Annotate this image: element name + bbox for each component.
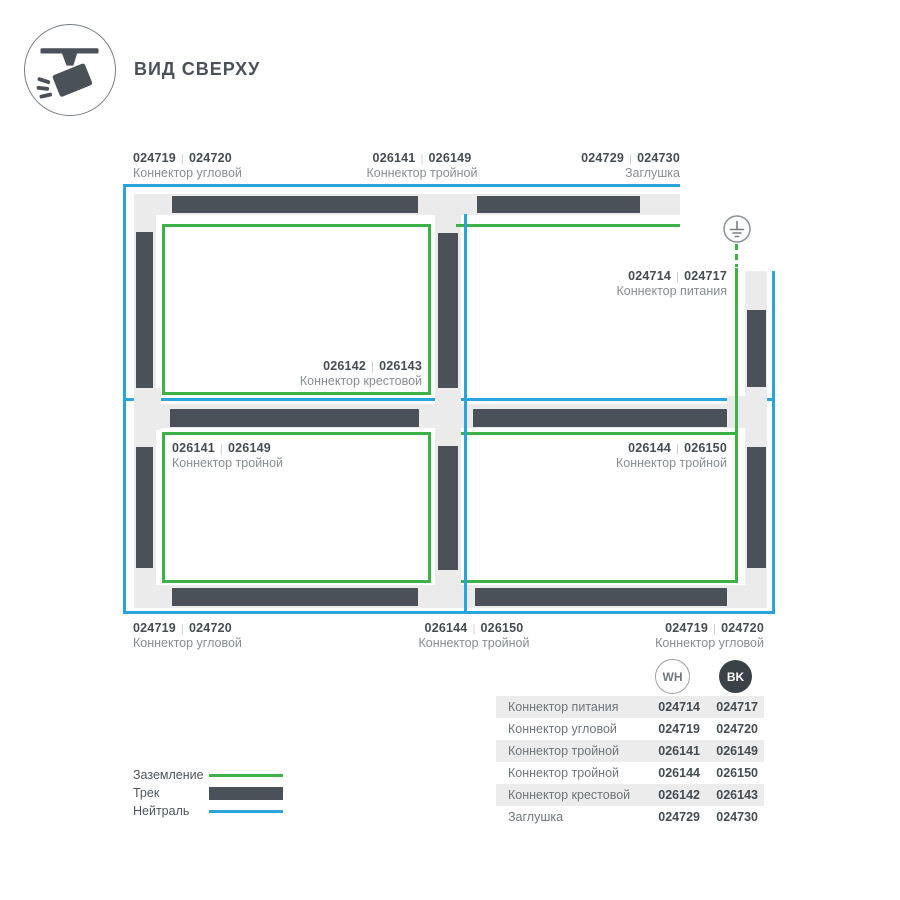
part-name: Коннектор тройной: [374, 637, 574, 650]
part-name: Коннектор угловой: [564, 637, 764, 650]
legend-item-neutral: Нейтраль: [133, 802, 283, 820]
code-separator: |: [415, 153, 428, 165]
code-wh: 024719: [665, 621, 708, 635]
track-segment: [438, 233, 458, 388]
code-bk: 026150: [481, 621, 524, 635]
track-segment: [477, 196, 640, 213]
part-label-bottom-right: 024719|024720 Коннектор угловой: [564, 621, 764, 650]
code-separator: |: [708, 623, 721, 635]
code-separator: |: [467, 623, 480, 635]
part-label-mid-left: 026141|026149 Коннектор тройной: [172, 441, 283, 470]
spotlight-glyph: [25, 25, 114, 114]
code-wh: 026141: [373, 151, 416, 165]
code-wh: 024729: [581, 151, 624, 165]
ground-line-bottom-right-top: [461, 432, 738, 435]
row-name: Коннектор угловой: [496, 722, 636, 736]
neutral-line-bottom: [123, 611, 775, 614]
track-segment: [136, 447, 153, 568]
row-code-wh: 026144: [636, 766, 700, 780]
code-wh: 026141: [172, 441, 215, 455]
code-bk: 024720: [189, 621, 232, 635]
track-segment: [172, 588, 418, 606]
code-wh: 024714: [628, 269, 671, 283]
code-separator: |: [366, 361, 379, 373]
code-wh: 026144: [425, 621, 468, 635]
row-code-wh: 026141: [636, 744, 700, 758]
track-segment: [136, 232, 153, 388]
legend-label: Нейтраль: [133, 804, 209, 818]
row-code-wh: 024719: [636, 722, 700, 736]
part-label-bottom-left: 024719|024720 Коннектор угловой: [133, 621, 242, 650]
code-bk: 024720: [189, 151, 232, 165]
part-label-top-left: 024719|024720 Коннектор угловой: [133, 151, 242, 180]
neutral-line-left: [123, 184, 126, 614]
code-separator: |: [215, 443, 228, 455]
code-bk: 024717: [684, 269, 727, 283]
track-segment: [438, 446, 458, 570]
code-bk: 026150: [684, 441, 727, 455]
code-wh: 026142: [323, 359, 366, 373]
row-code-wh: 024714: [636, 700, 700, 714]
neutral-line-top: [123, 184, 680, 187]
earth-ground-icon: [723, 215, 751, 243]
track-spotlight-icon: [24, 24, 116, 116]
legend-label: Заземление: [133, 768, 209, 782]
legend-item-track: Трек: [133, 784, 283, 802]
track-segment: [747, 447, 766, 568]
track-segment: [473, 409, 727, 427]
row-code-bk: 024717: [700, 700, 758, 714]
part-label-cross: 026142|026143 Коннектор крестовой: [222, 359, 422, 388]
parts-table-header: WH BK: [496, 659, 764, 696]
row-code-bk: 024720: [700, 722, 758, 736]
code-bk: 026149: [228, 441, 271, 455]
track-junction-left: [134, 388, 161, 430]
part-name: Коннектор крестовой: [222, 375, 422, 388]
code-separator: |: [624, 153, 637, 165]
ground-feed-vertical: [735, 268, 738, 583]
legend: Заземление Трек Нейтраль: [133, 766, 283, 820]
parts-table: WH BK Коннектор питания 024714 024717 Ко…: [496, 659, 764, 828]
part-name: Коннектор угловой: [133, 167, 242, 180]
row-code-bk: 026150: [700, 766, 758, 780]
color-badge-bk: BK: [719, 660, 752, 693]
table-row: Коннектор угловой 024719 024720: [496, 718, 764, 740]
neutral-line-middle-vertical: [464, 214, 467, 614]
neutral-line-swatch: [209, 810, 283, 813]
code-bk: 026149: [429, 151, 472, 165]
table-row: Коннектор крестовой 026142 026143: [496, 784, 764, 806]
legend-label: Трек: [133, 786, 209, 800]
row-code-bk: 024730: [700, 810, 758, 824]
row-name: Коннектор питания: [496, 700, 636, 714]
table-row: Коннектор тройной 026141 026149: [496, 740, 764, 762]
code-bk: 024730: [637, 151, 680, 165]
track-segment: [170, 409, 419, 427]
row-code-wh: 024729: [636, 810, 700, 824]
ground-line-bottom-right-bottom: [461, 580, 738, 583]
color-badge-wh: WH: [655, 659, 690, 694]
row-code-wh: 026142: [636, 788, 700, 802]
code-bk: 026143: [379, 359, 422, 373]
track-segment: [747, 310, 766, 387]
ground-dashed-link: [735, 244, 738, 267]
neutral-line-right: [772, 271, 775, 614]
row-code-bk: 026143: [700, 788, 758, 802]
track-segment: [172, 196, 418, 213]
row-code-bk: 026149: [700, 744, 758, 758]
row-name: Коннектор тройной: [496, 766, 636, 780]
track-segment: [475, 588, 727, 606]
part-name: Коннектор угловой: [133, 637, 242, 650]
code-separator: |: [671, 271, 684, 283]
part-label-mid-right: 026144|026150 Коннектор тройной: [527, 441, 727, 470]
page-title: ВИД СВЕРХУ: [134, 59, 260, 80]
part-name: Коннектор тройной: [172, 457, 283, 470]
ground-line-top-right-cell: [456, 224, 680, 227]
part-label-top-right: 024729|024730 Заглушка: [480, 151, 680, 180]
part-name: Коннектор питания: [527, 285, 727, 298]
track-bar-swatch: [209, 787, 283, 800]
code-wh: 026144: [628, 441, 671, 455]
page: ВИД СВЕРХУ: [0, 0, 900, 900]
part-label-bottom-center: 026144|026150 Коннектор тройной: [374, 621, 574, 650]
ground-line-swatch: [209, 774, 283, 777]
legend-item-ground: Заземление: [133, 766, 283, 784]
code-separator: |: [671, 443, 684, 455]
track-junction-right: [727, 396, 767, 428]
part-label-power: 024714|024717 Коннектор питания: [527, 269, 727, 298]
table-row: Коннектор тройной 026144 026150: [496, 762, 764, 784]
code-wh: 024719: [133, 151, 176, 165]
row-name: Коннектор крестовой: [496, 788, 636, 802]
row-name: Заглушка: [496, 810, 636, 824]
part-name: Заглушка: [480, 167, 680, 180]
code-wh: 024719: [133, 621, 176, 635]
table-row: Коннектор питания 024714 024717: [496, 696, 764, 718]
row-name: Коннектор тройной: [496, 744, 636, 758]
code-bk: 024720: [721, 621, 764, 635]
code-separator: |: [176, 623, 189, 635]
table-row: Заглушка 024729 024730: [496, 806, 764, 828]
part-name: Коннектор тройной: [527, 457, 727, 470]
code-separator: |: [176, 153, 189, 165]
